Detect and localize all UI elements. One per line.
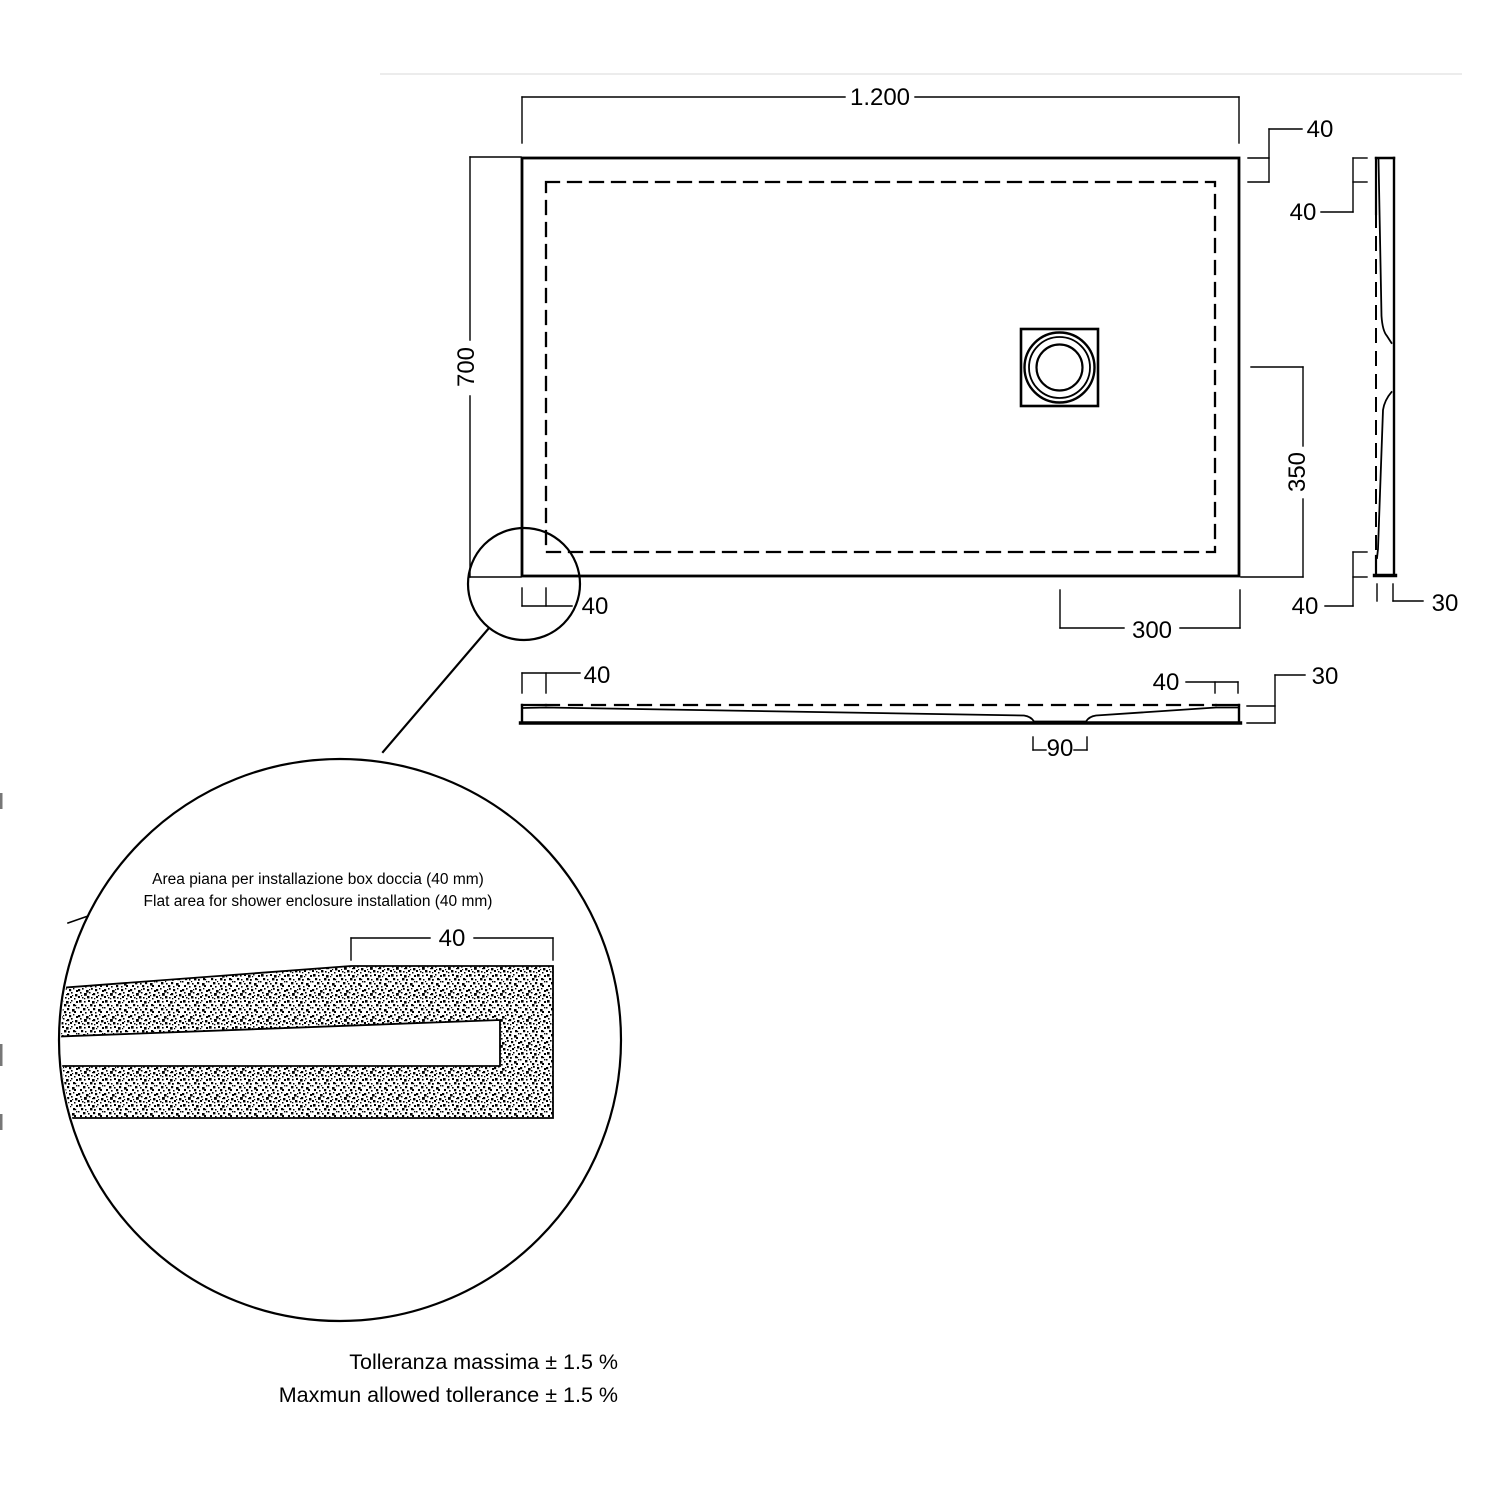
dim-flat-side-top: 40 (1290, 158, 1367, 226)
dim-total-width: 1.200 (522, 84, 1239, 143)
dim-flat-side-bottom-label: 40 (1292, 593, 1319, 620)
flat-rim-dashed-outline (546, 182, 1215, 552)
dim-front-thickness-label: 30 (1312, 663, 1339, 690)
drain-circle-inner (1037, 345, 1083, 391)
dim-detail-flat-label: 40 (439, 925, 466, 952)
side-slope-lower (1377, 392, 1392, 558)
detail-note-english: Flat area for shower enclosure installat… (144, 893, 493, 910)
dim-flat-front-left: 40 (522, 662, 610, 693)
dim-total-depth: 700 (453, 157, 521, 577)
tolerance-english: Maxmun allowed tollerance ± 1.5 % (279, 1383, 618, 1407)
front-slope-line (522, 708, 1239, 722)
dim-flat-corner-label: 40 (582, 593, 609, 620)
drain-circle-middle (1029, 337, 1090, 398)
dim-drain-to-edge: 350 (1241, 367, 1311, 577)
dim-drain-channel-width-label: 90 (1047, 735, 1074, 762)
drawing-canvas: Area piana per installazione box doccia … (0, 0, 1500, 1500)
technical-drawing: Area piana per installazione box doccia … (0, 0, 1500, 1500)
dim-drain-to-right-edge-label: 300 (1132, 617, 1172, 644)
scan-artifact-edge-marks (0, 793, 3, 1130)
tolerance-note: Tolleranza massima ± 1.5 % Maxmun allowe… (279, 1350, 618, 1407)
dim-total-width-label: 1.200 (850, 84, 910, 111)
dim-flat-front-right: 40 (1153, 669, 1238, 696)
side-slope-upper (1379, 159, 1392, 343)
dim-flat-front-right-label: 40 (1153, 669, 1180, 696)
edge-cross-section (46, 966, 553, 1118)
plan-view (383, 158, 1239, 752)
drain (1021, 329, 1098, 406)
dim-side-thickness-label: 30 (1432, 590, 1459, 617)
dim-side-thickness: 30 (1377, 584, 1458, 617)
dim-drain-channel-width: 90 (1033, 735, 1087, 762)
detail-view: Area piana per installazione box doccia … (46, 759, 621, 1321)
dim-flat-side-top-label: 40 (1290, 199, 1317, 226)
tolerance-italian: Tolleranza massima ± 1.5 % (349, 1350, 618, 1374)
detail-note-italian: Area piana per installazione box doccia … (152, 871, 484, 888)
tray-outline (522, 158, 1239, 576)
dim-total-depth-label: 700 (453, 347, 480, 387)
dim-flat-corner: 40 (522, 588, 608, 620)
detail-leader-line (383, 628, 489, 752)
drain-square (1021, 329, 1098, 406)
dim-drain-to-edge-label: 350 (1284, 452, 1311, 492)
dim-flat-top-right: 40 (1248, 116, 1333, 182)
dim-drain-to-right-edge: 300 (1060, 590, 1240, 644)
side-view (1375, 158, 1396, 576)
dim-front-thickness: 30 (1247, 663, 1338, 723)
front-view (521, 705, 1241, 723)
dim-flat-top-right-label: 40 (1307, 116, 1334, 143)
drain-circle-outer (1025, 333, 1095, 403)
dim-flat-front-left-label: 40 (584, 662, 611, 689)
detail-indicator-circle (468, 528, 580, 640)
